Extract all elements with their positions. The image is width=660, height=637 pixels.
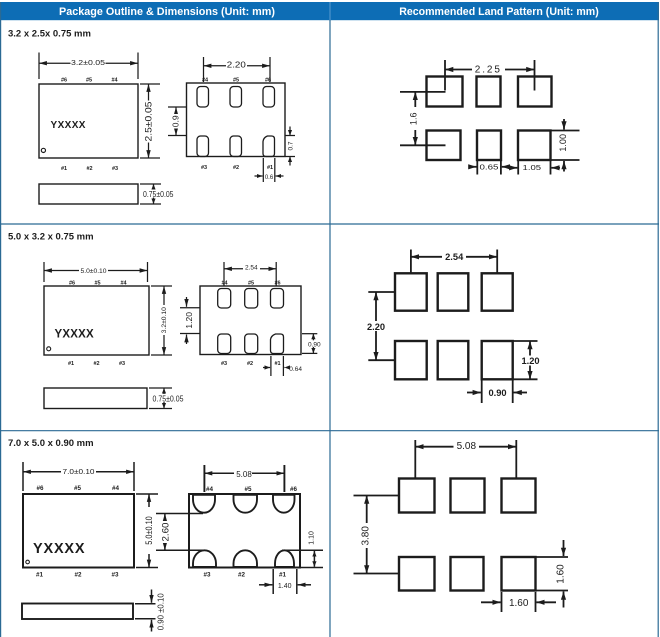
svg-text:0.90: 0.90 bbox=[308, 342, 321, 349]
svg-text:5.0±0.10: 5.0±0.10 bbox=[81, 268, 107, 275]
svg-text:0.9: 0.9 bbox=[171, 115, 181, 127]
svg-text:#2: #2 bbox=[93, 361, 99, 367]
svg-text:#6: #6 bbox=[61, 77, 67, 83]
svg-text:#4: #4 bbox=[202, 77, 209, 83]
svg-text:#5: #5 bbox=[94, 281, 100, 287]
svg-text:#1: #1 bbox=[274, 361, 280, 367]
svg-text:#2: #2 bbox=[74, 572, 82, 579]
svg-text:#5: #5 bbox=[244, 486, 252, 493]
svg-text:#4: #4 bbox=[221, 281, 228, 287]
svg-text:#6: #6 bbox=[274, 281, 280, 287]
svg-text:1.20: 1.20 bbox=[184, 312, 194, 329]
svg-text:2.20: 2.20 bbox=[367, 322, 385, 332]
svg-text:3.2±0.10: 3.2±0.10 bbox=[161, 307, 168, 333]
svg-text:Package Outline & Dimensions (: Package Outline & Dimensions (Unit: mm) bbox=[59, 6, 275, 18]
svg-text:3.2±0.05: 3.2±0.05 bbox=[71, 58, 105, 67]
svg-text:Recommended Land Pattern (Unit: Recommended Land Pattern (Unit: mm) bbox=[399, 6, 599, 18]
svg-text:3.2 x 2.5x 0.75 mm: 3.2 x 2.5x 0.75 mm bbox=[8, 29, 91, 40]
svg-text:0.7: 0.7 bbox=[288, 141, 295, 150]
svg-text:#2: #2 bbox=[86, 166, 92, 172]
svg-text:#1: #1 bbox=[61, 166, 67, 172]
svg-text:#6: #6 bbox=[69, 281, 75, 287]
svg-text:2.20: 2.20 bbox=[227, 59, 246, 69]
svg-text:0.64: 0.64 bbox=[289, 366, 302, 373]
svg-text:#4: #4 bbox=[112, 485, 120, 492]
svg-text:3.80: 3.80 bbox=[360, 526, 371, 546]
svg-text:1.6: 1.6 bbox=[409, 113, 419, 126]
svg-text:0.75±0.05: 0.75±0.05 bbox=[153, 394, 184, 403]
svg-text:#1: #1 bbox=[279, 572, 287, 579]
svg-text:#3: #3 bbox=[201, 165, 207, 171]
svg-text:#6: #6 bbox=[36, 485, 44, 492]
svg-text:#6: #6 bbox=[290, 486, 298, 493]
svg-text:7.0 x 5.0 x 0.90 mm: 7.0 x 5.0 x 0.90 mm bbox=[8, 438, 94, 449]
svg-text:5.0 x 3.2 x 0.75 mm: 5.0 x 3.2 x 0.75 mm bbox=[8, 232, 94, 243]
svg-text:1.10: 1.10 bbox=[309, 531, 316, 545]
svg-text:#2: #2 bbox=[247, 361, 253, 367]
svg-text:2.60: 2.60 bbox=[161, 523, 172, 542]
svg-text:#6: #6 bbox=[265, 77, 271, 83]
svg-text:#3: #3 bbox=[221, 361, 227, 367]
svg-text:#4: #4 bbox=[206, 486, 214, 493]
svg-text:#2: #2 bbox=[238, 572, 246, 579]
svg-text:0.90: 0.90 bbox=[488, 388, 506, 398]
svg-text:#1: #1 bbox=[36, 572, 44, 579]
svg-text:#2: #2 bbox=[233, 165, 239, 171]
svg-text:0.65: 0.65 bbox=[480, 163, 499, 172]
svg-text:YXXXX: YXXXX bbox=[55, 329, 94, 341]
svg-text:#3: #3 bbox=[112, 166, 118, 172]
svg-text:1.05: 1.05 bbox=[523, 163, 542, 172]
svg-text:0.75±0.05: 0.75±0.05 bbox=[143, 190, 174, 199]
svg-text:YXXXX: YXXXX bbox=[51, 120, 86, 131]
svg-text:1.00: 1.00 bbox=[558, 134, 568, 152]
svg-text:0.6: 0.6 bbox=[265, 175, 274, 181]
svg-text:2.25: 2.25 bbox=[475, 64, 502, 75]
svg-text:#1: #1 bbox=[68, 361, 74, 367]
svg-text:1.40: 1.40 bbox=[278, 583, 292, 590]
svg-text:#5: #5 bbox=[248, 281, 254, 287]
svg-text:2.54: 2.54 bbox=[245, 265, 258, 272]
svg-text:#3: #3 bbox=[203, 572, 211, 579]
svg-text:#5: #5 bbox=[74, 485, 82, 492]
svg-text:#1: #1 bbox=[267, 165, 273, 171]
svg-text:0.90 ±0.10: 0.90 ±0.10 bbox=[156, 593, 165, 631]
svg-text:5.0±0.10: 5.0±0.10 bbox=[144, 516, 155, 545]
svg-text:5.08: 5.08 bbox=[457, 441, 477, 452]
svg-text:#3: #3 bbox=[119, 361, 125, 367]
svg-text:1.60: 1.60 bbox=[509, 598, 529, 609]
svg-text:#4: #4 bbox=[120, 281, 127, 287]
svg-text:#5: #5 bbox=[233, 77, 239, 83]
svg-text:1.20: 1.20 bbox=[521, 356, 539, 366]
svg-text:2.5±0.05: 2.5±0.05 bbox=[144, 102, 155, 142]
svg-text:5.08: 5.08 bbox=[236, 470, 252, 479]
svg-text:2.54: 2.54 bbox=[445, 252, 464, 262]
svg-text:#5: #5 bbox=[86, 77, 92, 83]
svg-text:1.60: 1.60 bbox=[556, 564, 567, 584]
svg-text:7.0±0.10: 7.0±0.10 bbox=[63, 467, 95, 476]
svg-text:#3: #3 bbox=[111, 572, 119, 579]
svg-text:#4: #4 bbox=[111, 77, 118, 83]
svg-text:YXXXX: YXXXX bbox=[33, 541, 85, 557]
